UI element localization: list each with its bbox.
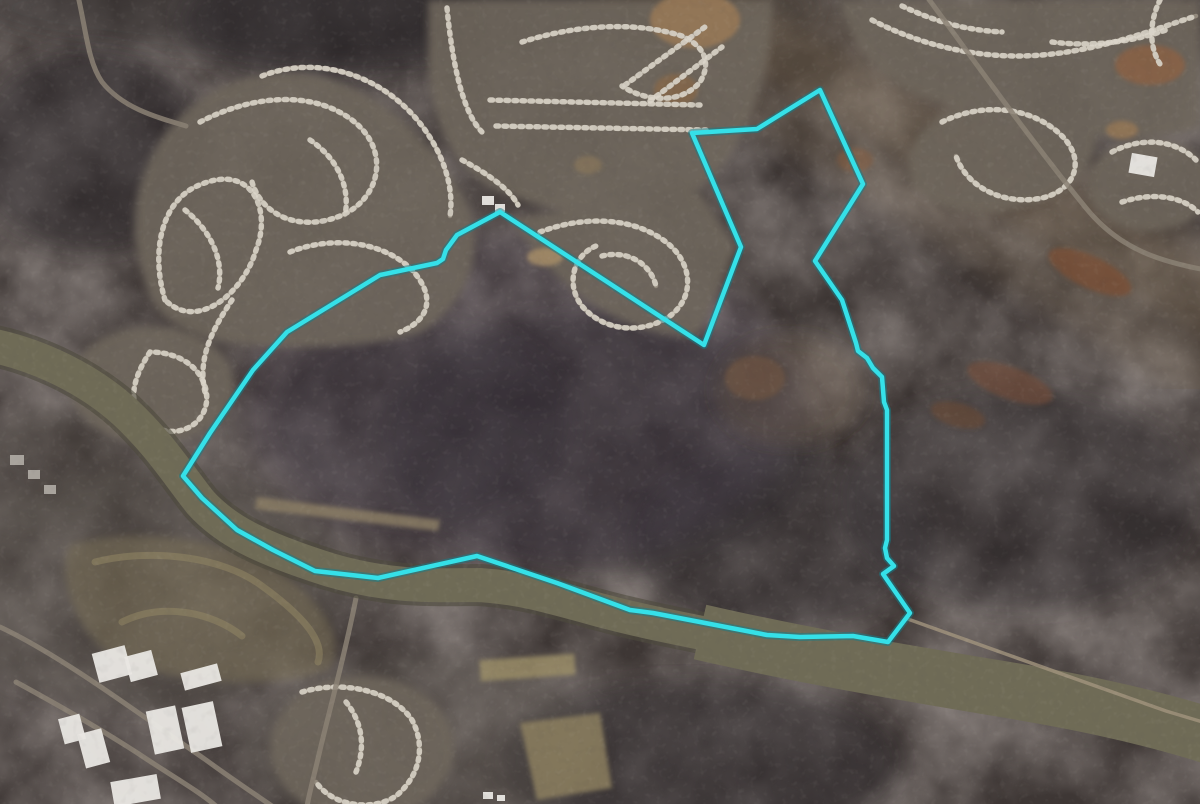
map-viewport <box>0 0 1200 804</box>
tree-speckle-texture <box>0 0 1200 804</box>
satellite-map-canvas[interactable] <box>0 0 1200 804</box>
